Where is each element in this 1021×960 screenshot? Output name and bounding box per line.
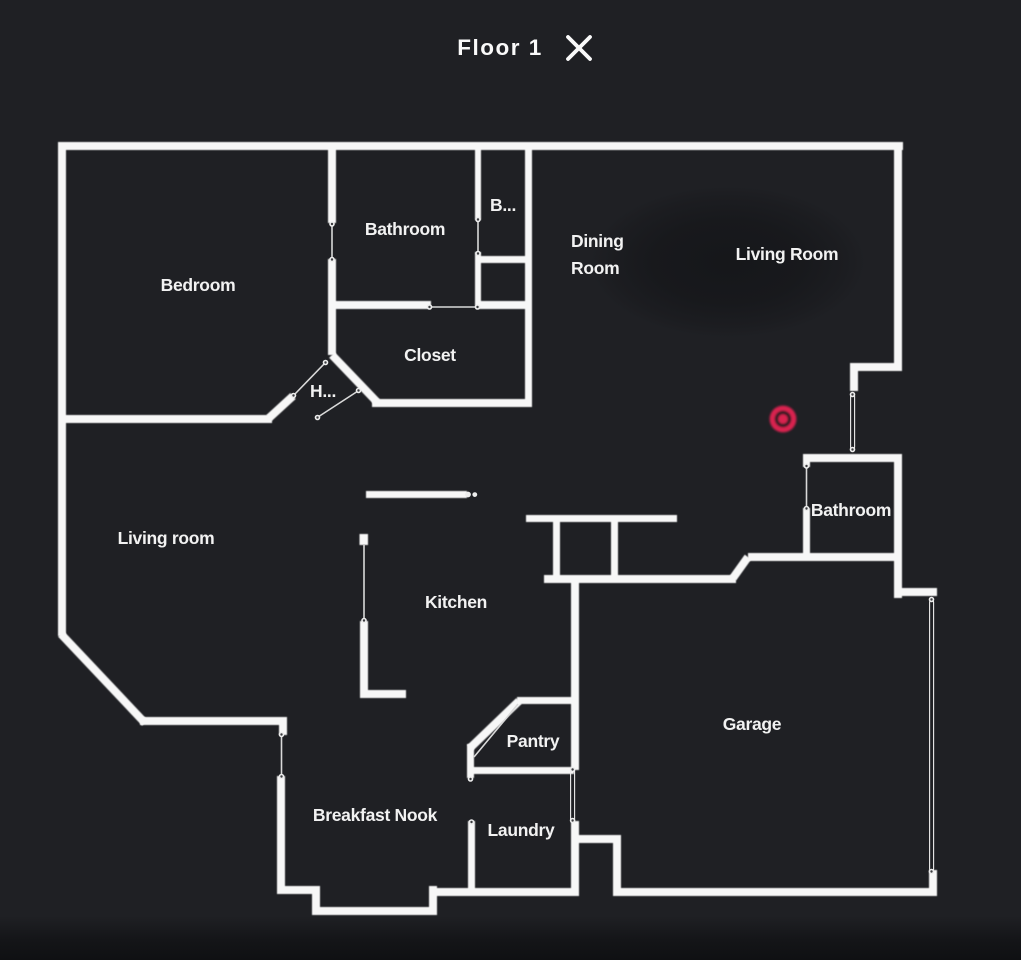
svg-text:Room: Room	[571, 258, 619, 278]
svg-text:Living room: Living room	[118, 528, 215, 548]
svg-text:Laundry: Laundry	[488, 820, 556, 840]
svg-text:Pantry: Pantry	[507, 731, 560, 751]
svg-text:Bathroom: Bathroom	[365, 219, 445, 239]
svg-text:Garage: Garage	[723, 714, 782, 734]
svg-text:Bathroom: Bathroom	[811, 500, 891, 520]
svg-text:Dining: Dining	[571, 231, 624, 251]
svg-text:Bedroom: Bedroom	[161, 275, 236, 295]
svg-text:B...: B...	[490, 195, 516, 215]
svg-text:Living Room: Living Room	[736, 244, 839, 264]
svg-text:Kitchen: Kitchen	[425, 592, 487, 612]
svg-text:Floor 1: Floor 1	[457, 35, 543, 60]
svg-text:Breakfast Nook: Breakfast Nook	[313, 805, 438, 825]
svg-text:Closet: Closet	[404, 345, 456, 365]
svg-text:H...: H...	[310, 381, 336, 401]
